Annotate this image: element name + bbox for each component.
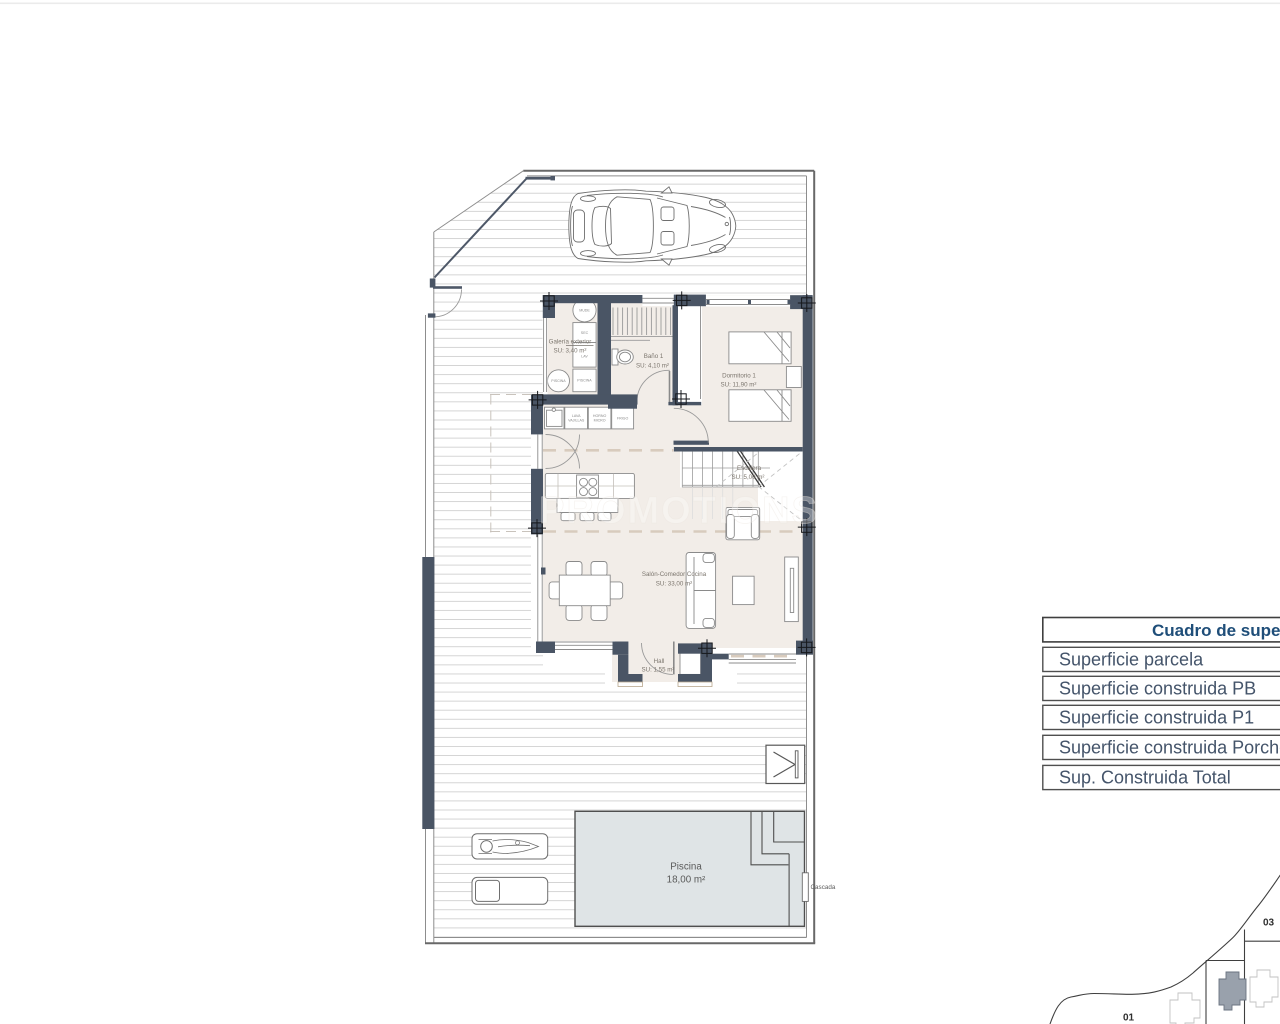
- svg-text:Superficie construida Porches: Superficie construida Porches: [1059, 738, 1280, 758]
- svg-text:SU: 4,10 m²: SU: 4,10 m²: [636, 363, 669, 370]
- svg-text:SU: 1,55 m²: SU: 1,55 m²: [641, 667, 674, 674]
- svg-text:03: 03: [1263, 918, 1275, 929]
- svg-text:Superficie construida PB: Superficie construida PB: [1059, 679, 1256, 699]
- svg-text:Dormitorio 1: Dormitorio 1: [722, 373, 756, 380]
- svg-text:VAJILLAS: VAJILLAS: [568, 419, 585, 423]
- svg-text:Sup. Construida Total: Sup. Construida Total: [1059, 768, 1231, 788]
- svg-text:Superficie parcela: Superficie parcela: [1059, 650, 1204, 670]
- svg-text:Cuadro de superficies: Cuadro de superficies: [1152, 621, 1280, 640]
- svg-text:18,00 m²: 18,00 m²: [667, 875, 706, 886]
- svg-text:Cascada: Cascada: [811, 884, 836, 891]
- svg-text:Superficie construida P1: Superficie construida P1: [1059, 708, 1254, 728]
- svg-text:SEC: SEC: [581, 331, 589, 335]
- svg-text:PROMOTIONS: PROMOTIONS: [539, 490, 819, 532]
- svg-text:LAVA: LAVA: [572, 414, 581, 418]
- svg-text:SU: 5,00 m²: SU: 5,00 m²: [731, 474, 764, 481]
- svg-text:Baño 1: Baño 1: [644, 353, 664, 360]
- svg-text:SU: 3,40 m²: SU: 3,40 m²: [553, 348, 586, 355]
- svg-text:PISCINA: PISCINA: [551, 379, 566, 383]
- svg-text:PISCINA: PISCINA: [577, 379, 592, 383]
- svg-text:FRIGO: FRIGO: [617, 417, 629, 421]
- svg-text:LAV: LAV: [581, 355, 588, 359]
- svg-text:Galería exterior: Galería exterior: [549, 339, 592, 346]
- svg-text:Piscina: Piscina: [670, 862, 702, 873]
- svg-text:HORNO: HORNO: [593, 414, 607, 418]
- svg-text:01: 01: [1123, 1013, 1135, 1024]
- svg-text:Escalera: Escalera: [737, 465, 762, 472]
- svg-text:SU: 11,90 m²: SU: 11,90 m²: [721, 382, 757, 389]
- svg-text:MICRO: MICRO: [594, 419, 606, 423]
- svg-text:SU: 33,00 m²: SU: 33,00 m²: [656, 581, 692, 588]
- svg-text:MUDE: MUDE: [579, 309, 590, 313]
- svg-text:Salón-Comedor Cocina: Salón-Comedor Cocina: [642, 571, 707, 578]
- svg-text:Hall: Hall: [654, 658, 665, 665]
